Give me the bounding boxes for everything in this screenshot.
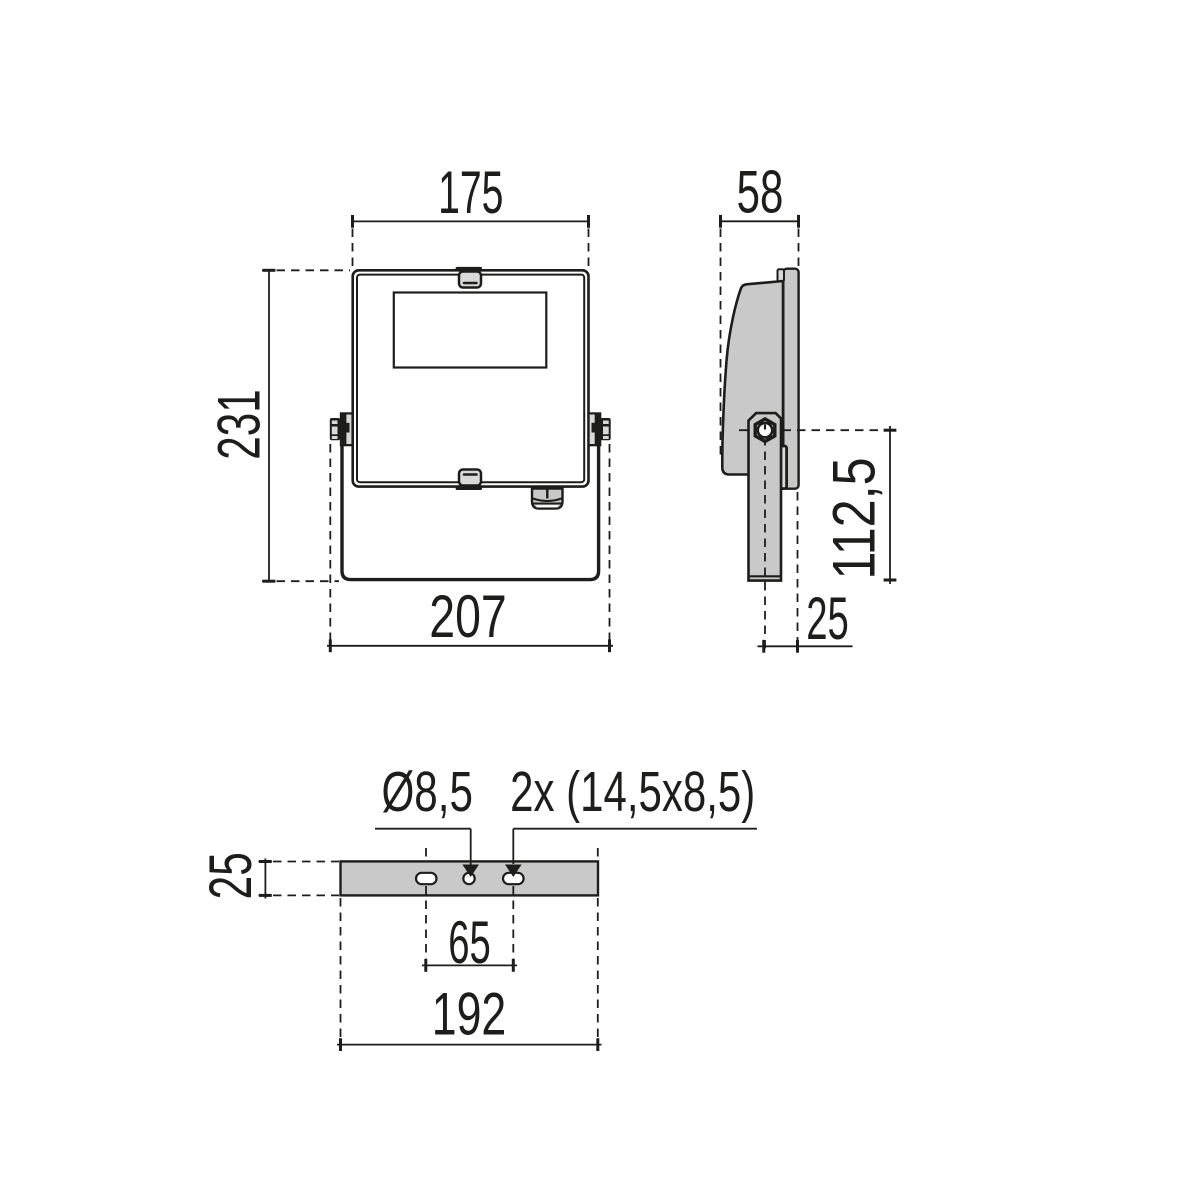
svg-text:112,5: 112,5 (820, 457, 887, 579)
svg-text:25: 25 (196, 852, 263, 899)
svg-text:25: 25 (806, 584, 849, 652)
svg-text:231: 231 (205, 389, 272, 459)
svg-text:175: 175 (438, 159, 503, 226)
svg-text:192: 192 (432, 981, 507, 1048)
svg-text:Ø8,5: Ø8,5 (381, 760, 472, 824)
svg-text:207: 207 (429, 583, 506, 650)
svg-text:58: 58 (737, 158, 784, 225)
svg-text:65: 65 (448, 908, 491, 976)
svg-text:2x (14,5x8,5): 2x (14,5x8,5) (510, 760, 755, 824)
